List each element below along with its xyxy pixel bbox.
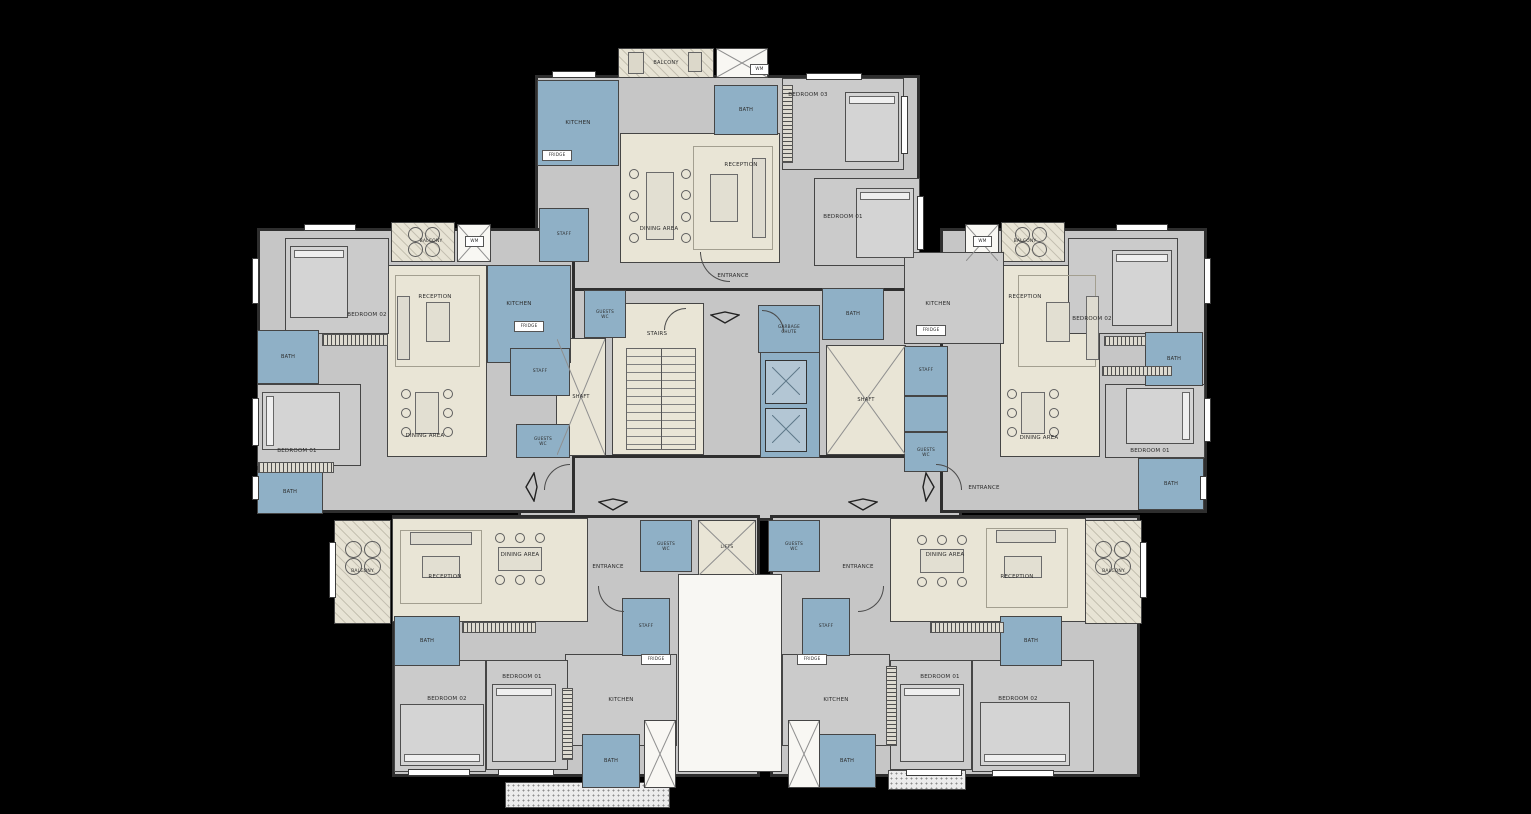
bed-furniture xyxy=(856,188,914,258)
room-bath-core: BATH xyxy=(822,288,884,340)
room-label-balcony-bottom-right: BALCONY xyxy=(1102,569,1125,574)
room-void-center xyxy=(678,574,782,772)
room-guests-wc-bottom-left: GUESTS WC xyxy=(640,520,692,572)
dining-chair xyxy=(681,212,691,222)
window-opening xyxy=(906,769,962,776)
flower-petal xyxy=(364,541,381,558)
label-bedroom-01: BEDROOM 01 xyxy=(815,212,871,222)
label-bedroom-01: BEDROOM 01 xyxy=(494,672,550,682)
bed-furniture xyxy=(262,392,340,450)
label-wm: WM xyxy=(465,236,484,247)
window-opening xyxy=(304,224,356,231)
room-lift-lobby: LIFTS xyxy=(698,520,756,576)
window-opening xyxy=(408,769,470,776)
window-opening xyxy=(901,96,908,154)
bed-pillow xyxy=(860,192,910,200)
dining-chair xyxy=(937,535,947,545)
label-entrance: ENTRANCE xyxy=(957,483,1011,493)
bed-pillow xyxy=(1182,392,1190,440)
room-label-kitchen-top: KITCHEN xyxy=(565,120,590,127)
label-bedroom-02: BEDROOM 02 xyxy=(1064,314,1120,324)
room-label-guests-wc-right: GUESTS WC xyxy=(917,447,935,457)
room-bath-bottom-left-upper: BATH xyxy=(394,616,460,666)
label-bedroom-01: BEDROOM 01 xyxy=(1122,446,1178,456)
label-bedroom-01: BEDROOM 01 xyxy=(912,672,968,682)
stairs-treads xyxy=(626,348,696,450)
dining-chair xyxy=(957,535,967,545)
label-dining-area: DINING AREA xyxy=(628,224,690,234)
dining-chair xyxy=(495,575,505,585)
label-stairs: STAIRS xyxy=(632,329,682,339)
room-shaft-void-right xyxy=(788,720,820,788)
dining-chair xyxy=(1007,408,1017,418)
planter-furniture xyxy=(688,52,702,72)
window-opening xyxy=(1204,258,1211,304)
label-bedroom-03: BEDROOM 03 xyxy=(780,90,836,100)
closet-hatch xyxy=(886,666,897,746)
room-label-bath-left-upper: BATH xyxy=(281,354,295,360)
room-label-kitchen-left: KITCHEN xyxy=(506,301,531,308)
room-label-guests-wc-bottom-right: GUESTS WC xyxy=(785,541,803,551)
label-entrance: ENTRANCE xyxy=(581,562,635,572)
label-dining-area: DINING AREA xyxy=(489,550,551,560)
elevator-car xyxy=(765,408,807,452)
sofa-furniture xyxy=(410,532,472,545)
label-dining-area: DINING AREA xyxy=(914,550,976,560)
room-bath-top: BATH xyxy=(714,85,778,135)
bed-pillow xyxy=(984,754,1066,762)
label-reception: RECEPTION xyxy=(406,292,464,302)
dining-chair xyxy=(443,389,453,399)
sofa-furniture xyxy=(752,158,766,238)
label-fridge: FRIDGE xyxy=(542,150,572,161)
room-label-bath-top: BATH xyxy=(739,107,753,113)
flower-petal xyxy=(1095,541,1112,558)
label-reception: RECEPTION xyxy=(416,572,474,582)
sofa-furniture xyxy=(1086,296,1099,360)
bed-pillow xyxy=(294,250,344,258)
closet-hatch xyxy=(1104,336,1146,346)
room-label-guests-wc-top: GUESTS WC xyxy=(596,309,614,319)
closet-hatch xyxy=(258,462,334,473)
label-reception: RECEPTION xyxy=(996,292,1054,302)
label-dining-area: DINING AREA xyxy=(1008,433,1070,443)
bed-furniture xyxy=(1112,250,1172,326)
bed-furniture xyxy=(400,704,484,766)
label-entrance: ENTRANCE xyxy=(705,271,761,281)
entry-arrow-down xyxy=(598,497,628,511)
room-label-lift-lobby: LIFTS xyxy=(721,545,734,550)
window-opening xyxy=(992,770,1054,777)
dining-chair xyxy=(629,169,639,179)
closet-hatch xyxy=(562,688,573,760)
dining-chair xyxy=(629,190,639,200)
room-shaft-right: SHAFT xyxy=(826,345,906,455)
window-opening xyxy=(1200,476,1207,500)
window-opening xyxy=(329,542,336,598)
room-label-kitchen-right: KITCHEN xyxy=(925,301,950,308)
window-opening xyxy=(252,398,259,446)
room-label-kitchen-bottom-left: KITCHEN xyxy=(608,697,633,704)
label-fridge: FRIDGE xyxy=(641,654,671,665)
dining-chair xyxy=(681,233,691,243)
closet-hatch xyxy=(322,334,388,346)
room-wc-right-small xyxy=(904,396,948,432)
dining-chair xyxy=(957,577,967,587)
label-bedroom-02: BEDROOM 02 xyxy=(990,694,1046,704)
label-dining-area: DINING AREA xyxy=(394,431,456,441)
bed-pillow xyxy=(1116,254,1168,262)
bed-furniture xyxy=(290,246,348,318)
room-label-bath-core: BATH xyxy=(846,311,860,317)
room-bath-bottom-right-upper: BATH xyxy=(1000,616,1062,666)
room-label-staff-bottom-left: STAFF xyxy=(639,624,654,629)
bed-pillow xyxy=(266,396,274,446)
window-opening xyxy=(498,769,554,776)
label-bedroom-02: BEDROOM 02 xyxy=(339,310,395,320)
room-label-kitchen-bottom-right: KITCHEN xyxy=(823,697,848,704)
label-fridge: FRIDGE xyxy=(916,325,946,336)
room-balcony-bottom-left: BALCONY xyxy=(334,520,391,624)
bed-pillow xyxy=(904,688,960,696)
room-label-staff-right: STAFF xyxy=(919,368,934,373)
room-label-balcony-left: BALCONY xyxy=(420,239,443,244)
room-label-staff-top: STAFF xyxy=(557,232,572,237)
room-label-bath-bottom-center-left: BATH xyxy=(604,758,618,764)
room-label-staff-left: STAFF xyxy=(533,369,548,374)
planter-furniture xyxy=(628,52,644,74)
closet-hatch xyxy=(1102,366,1172,376)
label-bedroom-01: BEDROOM 01 xyxy=(269,446,325,456)
dining-table xyxy=(415,392,439,434)
dining-chair xyxy=(937,577,947,587)
dining-chair xyxy=(515,575,525,585)
window-opening xyxy=(1116,224,1168,231)
label-fridge: FRIDGE xyxy=(514,321,544,332)
label-fridge: FRIDGE xyxy=(797,654,827,665)
dining-chair xyxy=(495,533,505,543)
room-staff-right: STAFF xyxy=(904,346,948,396)
room-bath-bottom-center-right: BATH xyxy=(818,734,876,788)
table-furniture xyxy=(426,302,450,342)
room-bath-right-upper: BATH xyxy=(1145,332,1203,386)
dining-chair xyxy=(535,533,545,543)
dining-chair xyxy=(535,575,545,585)
room-staff-bottom-right: STAFF xyxy=(802,598,850,656)
window-opening xyxy=(1140,542,1147,598)
room-staff-bottom-left: STAFF xyxy=(622,598,670,656)
dining-chair xyxy=(681,190,691,200)
room-label-guests-wc-bottom-left: GUESTS WC xyxy=(657,541,675,551)
room-label-bath-right-lower: BATH xyxy=(1164,481,1178,487)
bed-furniture xyxy=(980,702,1070,766)
dining-set xyxy=(1006,386,1060,440)
table-furniture xyxy=(710,174,738,222)
label-reception: RECEPTION xyxy=(712,160,770,170)
room-label-bath-bottom-left-upper: BATH xyxy=(420,638,434,644)
room-bath-left-upper: BATH xyxy=(257,330,319,384)
window-opening xyxy=(917,196,924,250)
entry-arrow-right xyxy=(922,472,936,502)
bed-furniture xyxy=(492,684,556,762)
room-label-balcony-top: BALCONY xyxy=(653,60,678,66)
room-guests-wc-bottom-right: GUESTS WC xyxy=(768,520,820,572)
bed-pillow xyxy=(496,688,552,696)
window-opening xyxy=(806,73,862,80)
dining-set xyxy=(914,534,970,588)
elevator-car xyxy=(765,360,807,404)
sofa-furniture xyxy=(397,296,410,360)
window-opening xyxy=(252,258,259,304)
room-shaft-void-left xyxy=(644,720,676,788)
room-label-staff-bottom-right: STAFF xyxy=(819,624,834,629)
room-guests-wc-top: GUESTS WC xyxy=(584,290,626,338)
dining-table xyxy=(1021,392,1045,434)
room-label-guests-wc-left: GUESTS WC xyxy=(534,436,552,446)
closet-hatch xyxy=(462,622,536,633)
dining-chair xyxy=(401,408,411,418)
dining-chair xyxy=(401,389,411,399)
entry-arrow-left xyxy=(524,472,538,502)
floor-plan: BALCONY BALCONY BALCONY BALCONYBALCONY S… xyxy=(0,0,1531,814)
dining-chair xyxy=(917,535,927,545)
dining-chair xyxy=(629,212,639,222)
dining-chair xyxy=(1049,389,1059,399)
bed-furniture xyxy=(1126,388,1194,444)
window-opening xyxy=(1204,398,1211,442)
room-bath-right-lower: BATH xyxy=(1138,458,1204,510)
room-staff-top: STAFF xyxy=(539,208,589,262)
dining-chair xyxy=(629,233,639,243)
room-label-bath-bottom-right-upper: BATH xyxy=(1024,638,1038,644)
room-label-shaft-left: SHAFT xyxy=(572,394,589,400)
dining-chair xyxy=(443,408,453,418)
stairs-divider xyxy=(661,349,662,449)
room-label-shaft-right: SHAFT xyxy=(857,397,874,403)
dining-set xyxy=(628,166,692,246)
room-shaft-left: SHAFT xyxy=(556,338,606,456)
dining-chair xyxy=(515,533,525,543)
label-bedroom-02: BEDROOM 02 xyxy=(419,694,475,704)
entry-arrow-down xyxy=(710,310,740,324)
label-wm: WM xyxy=(750,64,769,75)
room-label-bath-right-upper: BATH xyxy=(1167,356,1181,362)
bed-pillow xyxy=(404,754,480,762)
flower-petal xyxy=(1114,541,1131,558)
closet-hatch xyxy=(930,622,1004,633)
dining-chair xyxy=(681,169,691,179)
room-label-balcony-bottom-left: BALCONY xyxy=(351,569,374,574)
room-bath-left-lower: BATH xyxy=(257,470,323,514)
room-bath-bottom-center-left: BATH xyxy=(582,734,640,788)
label-reception: RECEPTION xyxy=(988,572,1046,582)
window-opening xyxy=(552,71,596,78)
window-opening xyxy=(252,476,259,500)
flower-petal xyxy=(345,541,362,558)
dining-chair xyxy=(1007,389,1017,399)
bed-pillow xyxy=(849,96,895,104)
sofa-furniture xyxy=(996,530,1056,543)
label-wm: WM xyxy=(973,236,992,247)
room-label-balcony-right: BALCONY xyxy=(1014,239,1037,244)
room-corridor-base xyxy=(518,455,962,521)
bed-furniture xyxy=(900,684,964,762)
dining-chair xyxy=(917,577,927,587)
label-entrance: ENTRANCE xyxy=(831,562,885,572)
room-label-garbage-chute: GARBAGE CHUTE xyxy=(778,324,800,334)
bed-furniture xyxy=(845,92,899,162)
room-label-bath-bottom-center-right: BATH xyxy=(840,758,854,764)
entry-arrow-down xyxy=(848,497,878,511)
dining-chair xyxy=(1049,408,1059,418)
room-label-bath-left-lower: BATH xyxy=(283,489,297,495)
